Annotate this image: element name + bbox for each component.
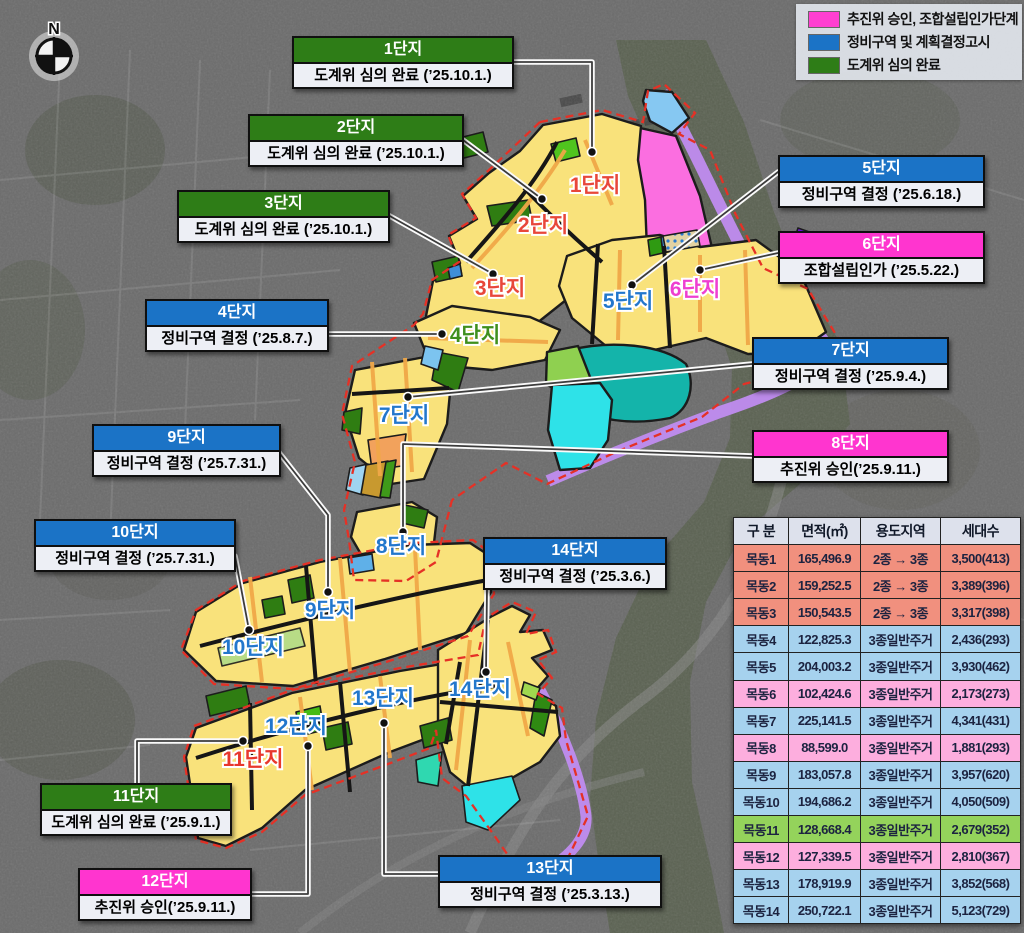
cell-units: 2,679(352) (941, 816, 1021, 843)
cell-zone: 2종 → 3종 (861, 599, 941, 626)
table-row-mokdong7: 목동7225,141.53종일반주거4,341(431) (734, 707, 1021, 734)
cell-units: 1,881(293) (941, 734, 1021, 761)
cell-zone: 3종일반주거 (861, 788, 941, 815)
table-row-mokdong9: 목동9183,057.83종일반주거3,957(620) (734, 761, 1021, 788)
cell-name: 목동5 (734, 653, 789, 680)
cell-zone: 2종 → 3종 (861, 545, 941, 572)
callout-status: 추진위 승인(’25.9.11.) (80, 896, 250, 919)
table-row-mokdong12: 목동12127,339.53종일반주거2,810(367) (734, 843, 1021, 870)
cell-zone: 3종일반주거 (861, 680, 941, 707)
cell-name: 목동6 (734, 680, 789, 707)
callout-status: 정비구역 결정 (’25.3.6.) (485, 565, 665, 588)
cell-area: 122,825.3 (789, 626, 861, 653)
cell-area: 178,919.9 (789, 870, 861, 897)
cell-zone: 3종일반주거 (861, 761, 941, 788)
cell-name: 목동13 (734, 870, 789, 897)
legend-item-approval: 추진위 승인, 조합설립인가단계 (796, 9, 1022, 29)
callout-district-8: 8단지 추진위 승인(’25.9.11.) (752, 430, 949, 483)
table-row-mokdong6: 목동6102,424.63종일반주거2,173(273) (734, 680, 1021, 707)
callout-status: 정비구역 결정 (’25.3.13.) (440, 883, 660, 906)
legend-swatch-green (808, 57, 840, 74)
table-row-mokdong2: 목동2159,252.52종 → 3종3,389(396) (734, 572, 1021, 599)
cell-area: 159,252.5 (789, 572, 861, 599)
cell-area: 204,003.2 (789, 653, 861, 680)
cell-zone: 3종일반주거 (861, 653, 941, 680)
callout-district-2: 2단지 도계위 심의 완료 (’25.10.1.) (248, 114, 464, 167)
callout-title: 5단지 (780, 157, 983, 183)
table-header-row: 구 분 면적(㎡) 용도지역 세대수 (734, 518, 1021, 545)
callout-title: 12단지 (80, 870, 250, 896)
cell-name: 목동11 (734, 816, 789, 843)
legend-item-review: 도계위 심의 완료 (796, 55, 1022, 75)
table-row-mokdong13: 목동13178,919.93종일반주거3,852(568) (734, 870, 1021, 897)
callout-title: 11단지 (42, 785, 230, 811)
map-label-14: 14단지 (449, 678, 511, 701)
map-label-4: 4단지 (450, 324, 500, 347)
cell-name: 목동2 (734, 572, 789, 599)
table-row-mokdong5: 목동5204,003.23종일반주거3,930(462) (734, 653, 1021, 680)
cell-zone: 3종일반주거 (861, 897, 941, 924)
col-header-area: 면적(㎡) (789, 518, 861, 545)
callout-district-4: 4단지 정비구역 결정 (’25.8.7.) (145, 299, 329, 352)
table-row-mokdong4: 목동4122,825.33종일반주거2,436(293) (734, 626, 1021, 653)
callout-district-9: 9단지 정비구역 결정 (’25.7.31.) (92, 424, 281, 477)
map-label-2: 2단지 (518, 214, 568, 237)
callout-title: 4단지 (147, 301, 327, 327)
callout-district-7: 7단지 정비구역 결정 (’25.9.4.) (752, 337, 949, 390)
map-label-6: 6단지 (670, 278, 720, 301)
map-label-8: 8단지 (376, 535, 426, 558)
mokdong-redevelopment-map: 1단지 2단지 3단지 4단지 5단지 6단지 7단지 8단지 9단지 10단지… (0, 0, 1024, 933)
legend-swatch-blue (808, 34, 840, 51)
col-header-name: 구 분 (734, 518, 789, 545)
cell-name: 목동14 (734, 897, 789, 924)
cell-area: 127,339.5 (789, 843, 861, 870)
callout-title: 8단지 (754, 432, 947, 458)
callout-title: 3단지 (179, 192, 388, 218)
map-label-1: 1단지 (570, 174, 620, 197)
callout-status: 정비구역 결정 (’25.9.4.) (754, 365, 947, 388)
table-row-mokdong8: 목동888,599.03종일반주거1,881(293) (734, 734, 1021, 761)
callout-title: 1단지 (294, 38, 512, 64)
cell-units: 3,852(568) (941, 870, 1021, 897)
callout-title: 6단지 (780, 233, 983, 259)
table-row-mokdong10: 목동10194,686.23종일반주거4,050(509) (734, 788, 1021, 815)
map-label-10: 10단지 (222, 636, 284, 659)
legend-item-decision: 정비구역 및 계획결정고시 (796, 32, 1022, 52)
callout-district-1: 1단지 도계위 심의 완료 (’25.10.1.) (292, 36, 514, 89)
cell-units: 2,173(273) (941, 680, 1021, 707)
cell-area: 150,543.5 (789, 599, 861, 626)
callout-title: 10단지 (36, 521, 234, 547)
legend-label: 도계위 심의 완료 (847, 55, 940, 75)
cell-units: 3,930(462) (941, 653, 1021, 680)
callout-status: 정비구역 결정 (’25.6.18.) (780, 183, 983, 206)
callout-status: 도계위 심의 완료 (’25.10.1.) (250, 142, 462, 165)
callout-district-5: 5단지 정비구역 결정 (’25.6.18.) (778, 155, 985, 208)
cell-area: 250,722.1 (789, 897, 861, 924)
callout-district-12: 12단지 추진위 승인(’25.9.11.) (78, 868, 252, 921)
table-row-mokdong3: 목동3150,543.52종 → 3종3,317(398) (734, 599, 1021, 626)
compass: N (24, 8, 88, 88)
callout-district-13: 13단지 정비구역 결정 (’25.3.13.) (438, 855, 662, 908)
cell-zone: 2종 → 3종 (861, 572, 941, 599)
cell-zone: 3종일반주거 (861, 870, 941, 897)
cell-zone: 3종일반주거 (861, 626, 941, 653)
callout-status: 도계위 심의 완료 (’25.10.1.) (179, 218, 388, 241)
table-row-mokdong11: 목동11128,668.43종일반주거2,679(352) (734, 816, 1021, 843)
cell-zone: 3종일반주거 (861, 843, 941, 870)
cell-name: 목동7 (734, 707, 789, 734)
callout-title: 7단지 (754, 339, 947, 365)
callout-status: 도계위 심의 완료 (’25.10.1.) (294, 64, 512, 87)
map-label-12: 12단지 (265, 715, 327, 738)
legend: 추진위 승인, 조합설립인가단계 정비구역 및 계획결정고시 도계위 심의 완료 (796, 4, 1022, 80)
callout-district-10: 10단지 정비구역 결정 (’25.7.31.) (34, 519, 236, 572)
cell-zone: 3종일반주거 (861, 734, 941, 761)
cell-units: 3,957(620) (941, 761, 1021, 788)
map-label-11: 11단지 (223, 748, 284, 771)
cell-units: 3,389(396) (941, 572, 1021, 599)
callout-district-3: 3단지 도계위 심의 완료 (’25.10.1.) (177, 190, 390, 243)
callout-title: 13단지 (440, 857, 660, 883)
cell-name: 목동1 (734, 545, 789, 572)
district-data-table: 구 분 면적(㎡) 용도지역 세대수 목동1165,496.92종 → 3종3,… (733, 517, 1021, 924)
cell-zone: 3종일반주거 (861, 707, 941, 734)
cell-zone: 3종일반주거 (861, 816, 941, 843)
callout-status: 정비구역 결정 (’25.8.7.) (147, 327, 327, 350)
cell-units: 4,050(509) (941, 788, 1021, 815)
legend-label: 정비구역 및 계획결정고시 (847, 32, 990, 52)
cell-area: 225,141.5 (789, 707, 861, 734)
cell-area: 194,686.2 (789, 788, 861, 815)
legend-swatch-pink (808, 11, 840, 28)
cell-units: 2,810(367) (941, 843, 1021, 870)
callout-status: 정비구역 결정 (’25.7.31.) (36, 547, 234, 570)
map-label-3: 3단지 (475, 277, 525, 300)
callout-status: 도계위 심의 완료 (’25.9.1.) (42, 811, 230, 834)
map-label-7: 7단지 (379, 404, 429, 427)
compass-n-label: N (48, 21, 60, 38)
table-row-mokdong14: 목동14250,722.13종일반주거5,123(729) (734, 897, 1021, 924)
cell-units: 3,500(413) (941, 545, 1021, 572)
callout-status: 추진위 승인(’25.9.11.) (754, 458, 947, 481)
cell-name: 목동10 (734, 788, 789, 815)
cell-name: 목동4 (734, 626, 789, 653)
cell-name: 목동8 (734, 734, 789, 761)
cell-area: 102,424.6 (789, 680, 861, 707)
callout-status: 정비구역 결정 (’25.7.31.) (94, 452, 279, 475)
map-label-13: 13단지 (352, 687, 414, 710)
cell-units: 2,436(293) (941, 626, 1021, 653)
cell-area: 165,496.9 (789, 545, 861, 572)
map-label-5: 5단지 (603, 290, 653, 313)
cell-name: 목동12 (734, 843, 789, 870)
cell-area: 128,668.4 (789, 816, 861, 843)
callout-district-11: 11단지 도계위 심의 완료 (’25.9.1.) (40, 783, 232, 836)
cell-units: 3,317(398) (941, 599, 1021, 626)
cell-area: 88,599.0 (789, 734, 861, 761)
cell-name: 목동3 (734, 599, 789, 626)
col-header-zone: 용도지역 (861, 518, 941, 545)
map-label-9: 9단지 (305, 599, 355, 622)
table-row-mokdong1: 목동1165,496.92종 → 3종3,500(413) (734, 545, 1021, 572)
callout-title: 14단지 (485, 539, 665, 565)
cell-units: 5,123(729) (941, 897, 1021, 924)
callout-district-14: 14단지 정비구역 결정 (’25.3.6.) (483, 537, 667, 590)
col-header-units: 세대수 (941, 518, 1021, 545)
cell-units: 4,341(431) (941, 707, 1021, 734)
callout-status: 조합설립인가 (’25.5.22.) (780, 259, 983, 282)
cell-area: 183,057.8 (789, 761, 861, 788)
callout-district-6: 6단지 조합설립인가 (’25.5.22.) (778, 231, 985, 284)
callout-title: 9단지 (94, 426, 279, 452)
cell-name: 목동9 (734, 761, 789, 788)
legend-label: 추진위 승인, 조합설립인가단계 (847, 9, 1018, 29)
callout-title: 2단지 (250, 116, 462, 142)
